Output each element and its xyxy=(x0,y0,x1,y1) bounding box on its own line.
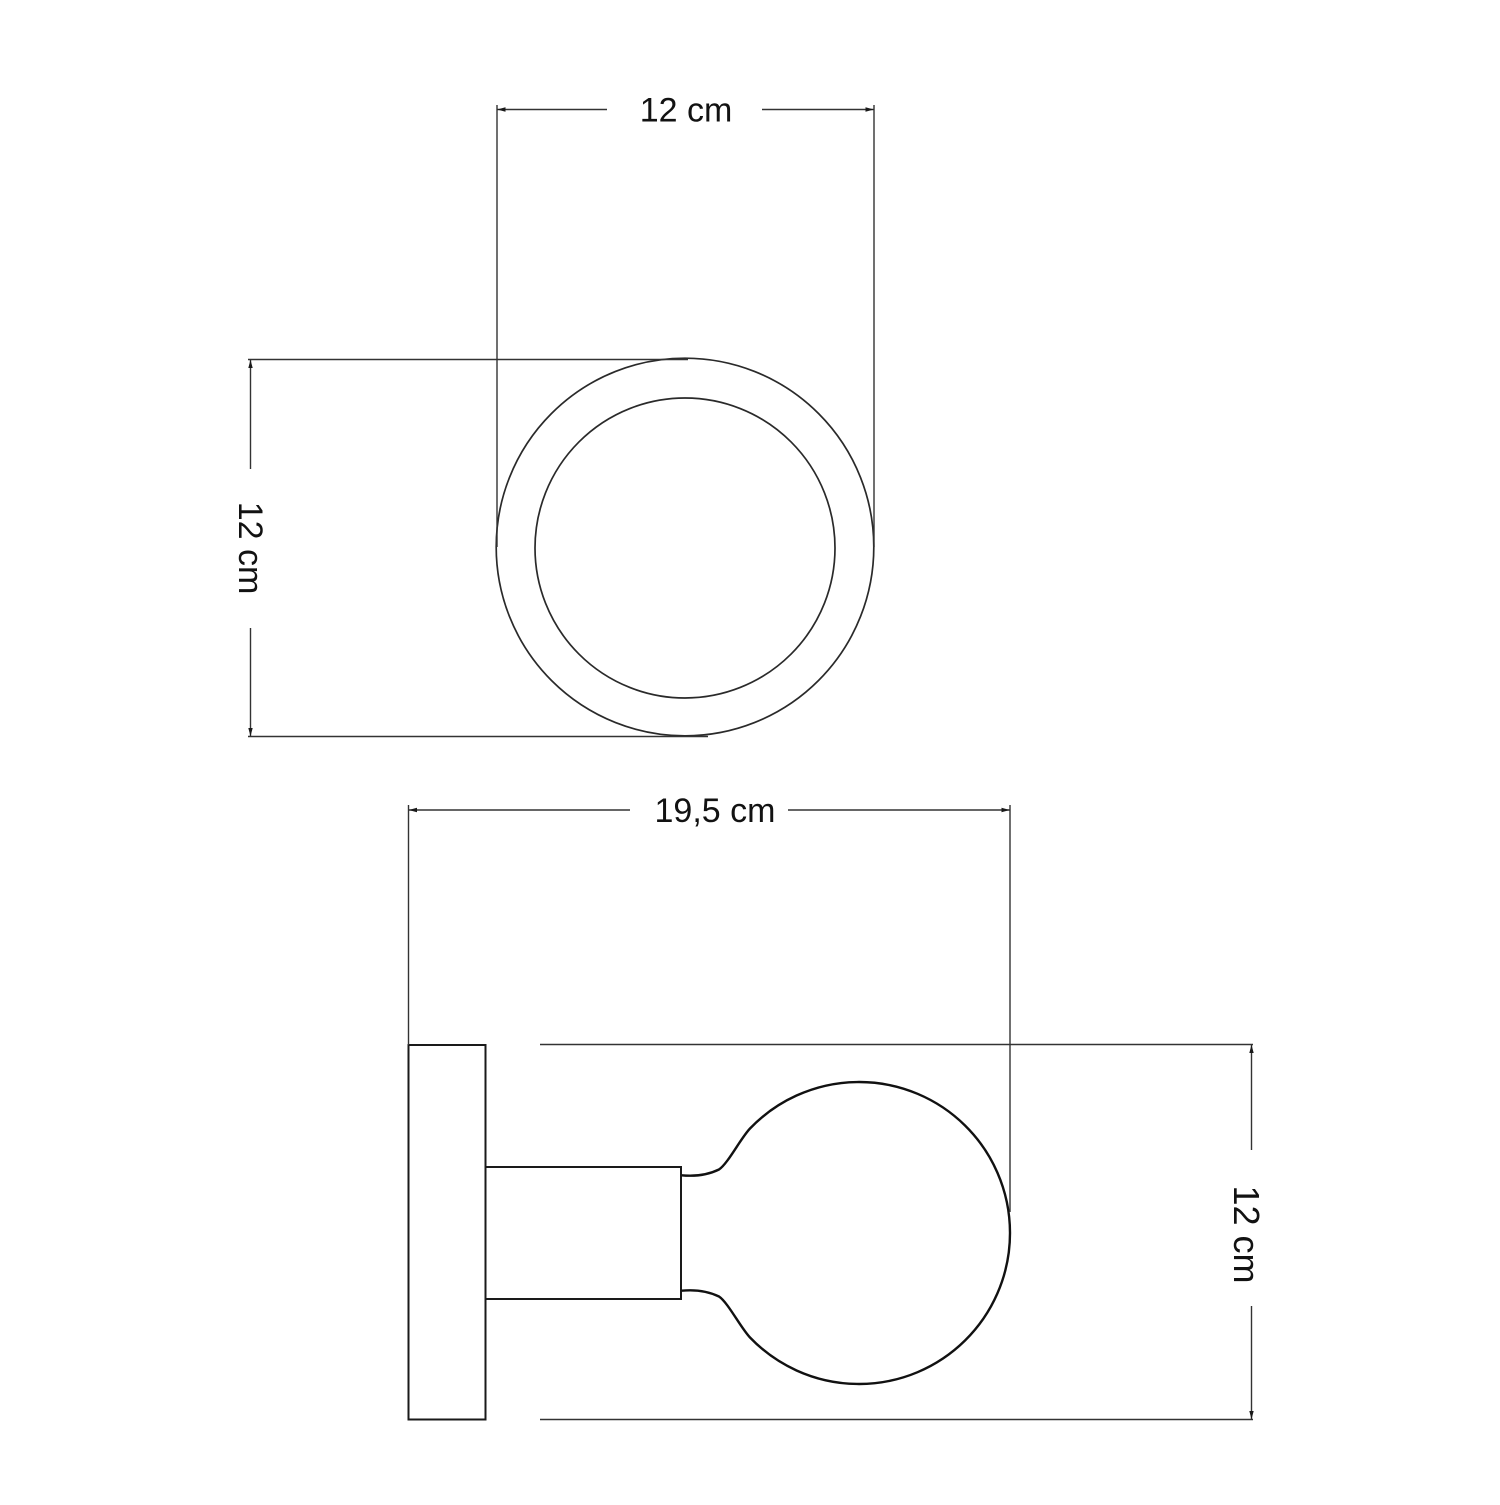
svg-text:12 cm: 12 cm xyxy=(1226,1185,1267,1283)
svg-text:12 cm: 12 cm xyxy=(231,502,269,595)
svg-text:19,5 cm: 19,5 cm xyxy=(655,792,776,830)
svg-text:12 cm: 12 cm xyxy=(640,92,733,130)
